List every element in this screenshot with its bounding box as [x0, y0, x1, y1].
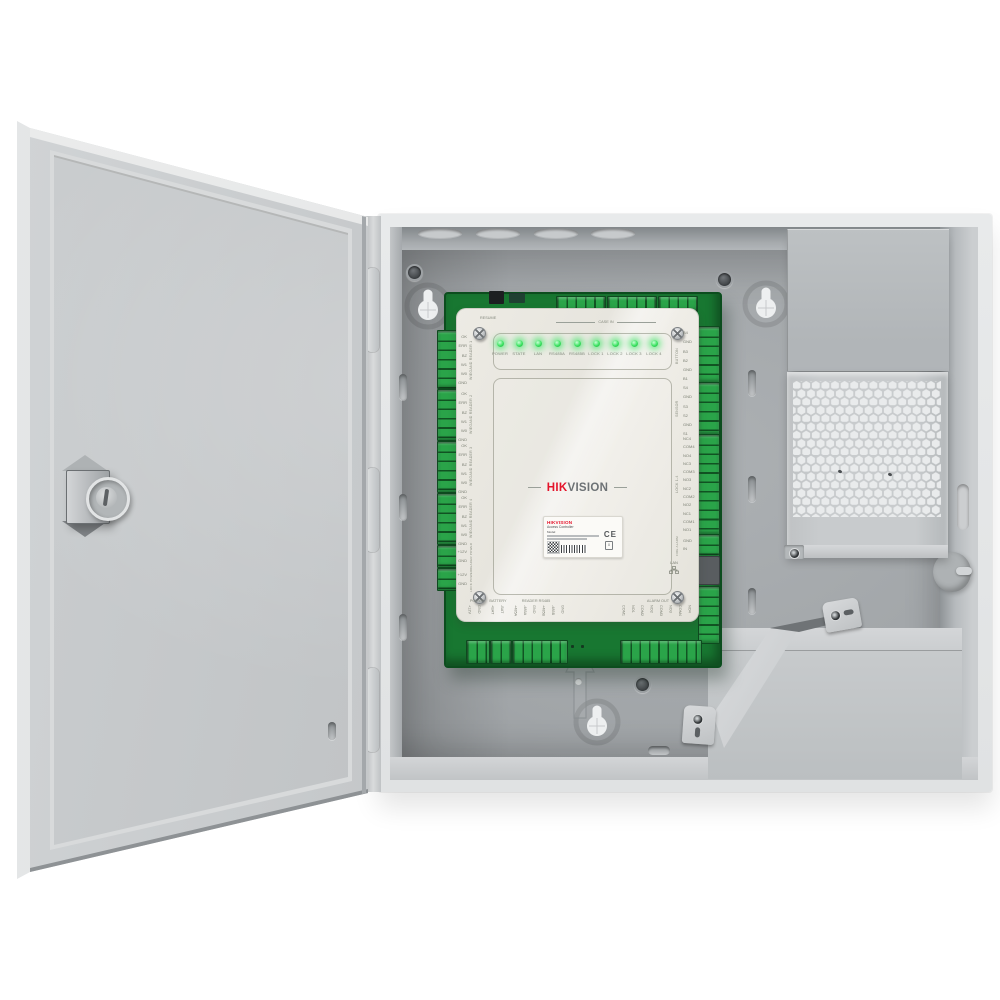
pin-labels-lock-power: +12V GND: [456, 570, 467, 588]
led-dot: [497, 340, 504, 347]
enclosure-left-wall: [390, 227, 402, 757]
resume-switch: [489, 291, 504, 304]
panel-dimple: [399, 374, 407, 400]
terminal-block-alarm-out: [620, 640, 702, 664]
honeycomb-vents: [787, 372, 948, 558]
group-label-sensor: SENSOR: [675, 383, 679, 434]
group-label-fire-alarm: FIRE ALARM: [675, 535, 679, 557]
lan-port: [697, 556, 720, 585]
pin-labels-reader3: OK ERR BZ W1 W0 GND: [456, 441, 467, 497]
psu-cover-foot: [784, 545, 804, 559]
pin-labels-fire-alarm: GND IN: [683, 537, 699, 553]
terminal-block-fire-alarm: [698, 534, 720, 557]
qr-code: [547, 541, 560, 554]
group-label-alarm-out: ALARM OUT: [628, 599, 688, 603]
led-dot: [516, 340, 523, 347]
pcb-component: [571, 645, 574, 648]
panel-dimple: [748, 476, 756, 502]
led-dot: [612, 340, 619, 347]
cable-cover-box: [787, 229, 949, 371]
psu-cover-fold: [787, 545, 948, 558]
cable-knockout: [591, 228, 635, 238]
pin-labels-rs485-bottom: +485A -485A GND +485B -485B GND: [510, 605, 566, 623]
panel-screw: [634, 676, 651, 693]
panel-screw: [716, 271, 733, 288]
pin-labels-alarm-out: COM1 NO1 COM2 NO2 COM3 NO3 COM4 NO4: [618, 605, 693, 623]
group-label-reader2: WIEGAND READER 2: [469, 389, 473, 439]
wall-slot: [957, 484, 969, 530]
cover-screw: [473, 327, 486, 340]
terminal-block-button: [698, 326, 720, 383]
terminal-block-right-lower: [698, 586, 720, 644]
group-label-reader4: WIEGAND READER 4: [469, 493, 473, 543]
panel-dimple: [399, 494, 407, 520]
pin-labels-reader4: OK ERR BZ W1 W0 GND: [456, 493, 467, 549]
logo-vision: VISION: [567, 482, 608, 494]
terminal-block-lock: [698, 434, 720, 535]
terminal-block-battery: [490, 640, 512, 664]
logo-hik: HIK: [547, 482, 568, 494]
label-text-bar: [547, 538, 587, 540]
hikvision-logo: HIKVISION: [456, 478, 699, 496]
pin-labels-button: B4 GND B3 B2 GND B1: [683, 328, 699, 384]
pin-labels-sensor: S4 GND S3 S2 GND S1: [683, 383, 699, 439]
panel-dimple: [748, 588, 756, 614]
terminal-block-sensor: [698, 382, 720, 435]
pcb-component: [581, 645, 584, 648]
pcb-component: [509, 293, 525, 303]
group-label-lock: LOCK 1-4: [675, 435, 679, 534]
pin-labels-power: +12V GND: [464, 605, 483, 623]
ce-mark: CE: [604, 530, 617, 539]
cable-knockout: [418, 228, 462, 238]
product-label: HIKVISION Access Controller Model: CE x: [543, 516, 623, 558]
pin-labels-reader-power: +12V GND: [456, 547, 467, 565]
resume-label: RESUME: [480, 316, 496, 320]
cable-knockout: [476, 228, 520, 238]
group-label-reader1: WIEGAND READER 1: [469, 332, 473, 388]
label-brand: HIKVISION: [547, 520, 619, 525]
group-label-reader3: WIEGAND READER 3: [469, 441, 473, 491]
barcode: [561, 545, 587, 553]
label-product: Access Controller: [547, 525, 619, 529]
pin-labels-lock: NC4 COM4 NO4 NC3 COM3 NO3 NC2 COM2 NO2 N…: [683, 435, 699, 535]
group-label-button: BUTTON: [675, 328, 679, 384]
group-label-rs485: READER RS485: [506, 599, 566, 603]
label-text-bar: [547, 535, 599, 537]
lan-label: LAN: [664, 560, 684, 565]
thumb-knob-pin: [956, 567, 972, 575]
led-dot: [554, 340, 561, 347]
terminal-block-power: [466, 640, 490, 664]
lan-group: LAN: [664, 560, 684, 574]
case-in-group: CASE IN: [556, 320, 656, 324]
power-supply-cover: [787, 372, 948, 558]
case-in-label: CASE IN: [598, 320, 613, 324]
group-label-lock-power: LOCK POWER: [469, 568, 473, 594]
door-dimple: [328, 722, 336, 740]
ethernet-icon: [669, 566, 679, 574]
weee-icon: x: [605, 541, 613, 550]
cable-knockout: [534, 228, 578, 238]
pin-labels-reader1: OK ERR BZ W1 W0 GND: [456, 332, 467, 388]
panel-dimple: [648, 746, 670, 755]
pin-labels-battery: +BAT -BAT: [487, 605, 506, 623]
panel-dimple: [399, 614, 407, 640]
bracket-mounting-tab: [682, 705, 717, 745]
pin-labels-reader2: OK ERR BZ W1 W0 GND: [456, 389, 467, 445]
led-indicator: LOCK 4: [643, 340, 665, 356]
led-dot: [593, 340, 600, 347]
product-photo: RESUME CASE IN POWER STATE LAN RS485A RS…: [0, 0, 1000, 1000]
led-indicator: RS485A: [546, 340, 568, 356]
logo-dash: [528, 487, 541, 488]
logo-dash: [614, 487, 627, 488]
bracket-mounting-tab: [822, 597, 863, 633]
group-label-reader-power: READER POWER: [469, 543, 473, 569]
terminal-block-rs485: [512, 640, 568, 664]
led-dot: [535, 340, 542, 347]
keyhole-slot: [742, 280, 790, 328]
board-cover: RESUME CASE IN POWER STATE LAN RS485A RS…: [456, 308, 699, 622]
led-dot: [651, 340, 658, 347]
led-dot: [631, 340, 638, 347]
panel-screw: [406, 264, 423, 281]
led-indicator: LOCK 3: [623, 340, 645, 356]
led-dot: [574, 340, 581, 347]
panel-dimple: [748, 370, 756, 396]
